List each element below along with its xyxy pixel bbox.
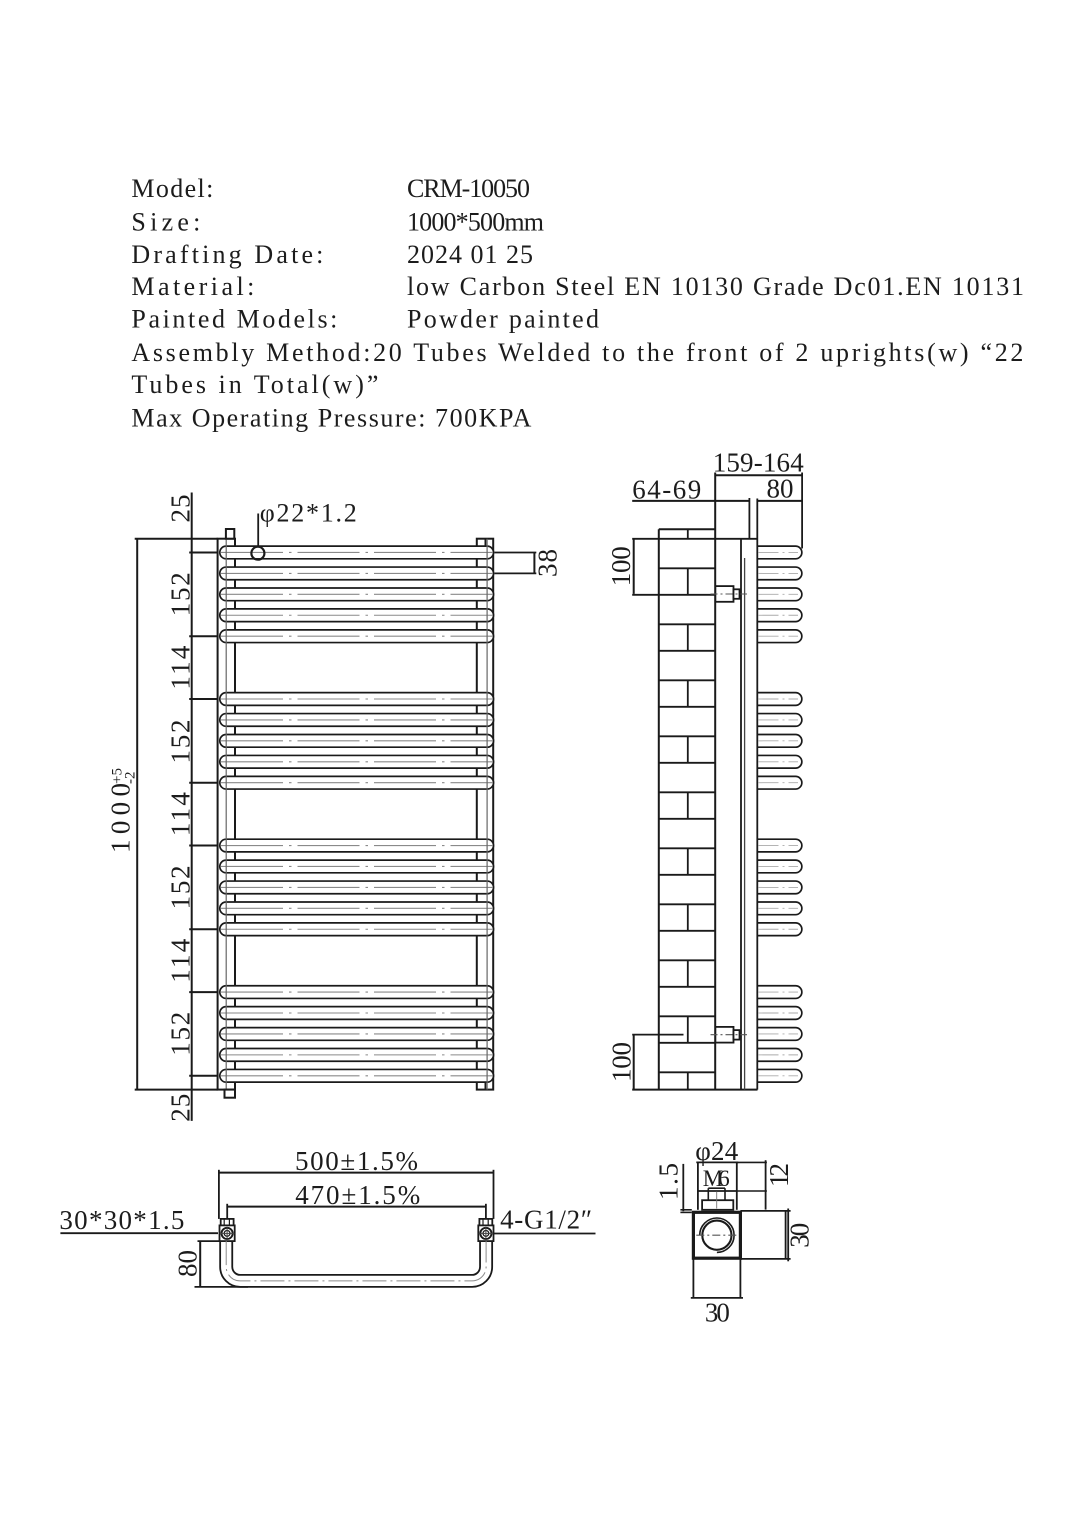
svg-text:80: 80 <box>767 474 794 504</box>
svg-text:30*30*1.5: 30*30*1.5 <box>59 1205 184 1235</box>
svg-text:80: 80 <box>173 1250 203 1277</box>
svg-text:-2: -2 <box>123 772 139 785</box>
svg-text:100: 100 <box>607 1042 637 1082</box>
svg-text:Assembly Method:20 Tubes Welde: Assembly Method:20 Tubes Welded to the f… <box>131 338 1023 367</box>
svg-text:2024 01 25: 2024 01 25 <box>407 240 533 269</box>
svg-text:114: 114 <box>166 792 196 837</box>
svg-text:30: 30 <box>705 1298 730 1328</box>
svg-text:Max Operating Pressure: 700KPA: Max Operating Pressure: 700KPA <box>131 404 531 433</box>
svg-text:100: 100 <box>606 546 636 586</box>
svg-text:114: 114 <box>166 645 196 690</box>
svg-text:500±1.5%: 500±1.5% <box>295 1146 418 1176</box>
svg-text:152: 152 <box>166 1012 196 1056</box>
svg-text:Material:: Material: <box>131 272 254 301</box>
svg-text:1000*500mm: 1000*500mm <box>407 208 544 237</box>
svg-text:64-69: 64-69 <box>632 474 701 504</box>
svg-text:1.5: 1.5 <box>654 1163 684 1200</box>
svg-text:114: 114 <box>166 938 196 983</box>
svg-text:152: 152 <box>166 572 196 616</box>
svg-text:4-G1/2″: 4-G1/2″ <box>500 1205 592 1235</box>
svg-text:12: 12 <box>764 1163 794 1187</box>
svg-text:CRM-10050: CRM-10050 <box>407 174 530 203</box>
svg-text:M6: M6 <box>703 1166 730 1191</box>
svg-text:low Carbon Steel EN 10130 Grad: low Carbon Steel EN 10130 Grade Dc01.EN … <box>407 272 1024 301</box>
svg-text:470±1.5%: 470±1.5% <box>295 1180 420 1210</box>
svg-text:25: 25 <box>166 495 196 523</box>
svg-text:152: 152 <box>166 865 196 909</box>
svg-text:Model:: Model: <box>131 174 213 203</box>
svg-text:30: 30 <box>785 1223 815 1248</box>
svg-text:Tubes in Total(w)”: Tubes in Total(w)” <box>131 370 378 399</box>
svg-text:152: 152 <box>166 720 196 764</box>
svg-text:φ24: φ24 <box>695 1136 739 1166</box>
svg-text:38: 38 <box>533 549 563 577</box>
svg-text:25: 25 <box>166 1094 196 1122</box>
